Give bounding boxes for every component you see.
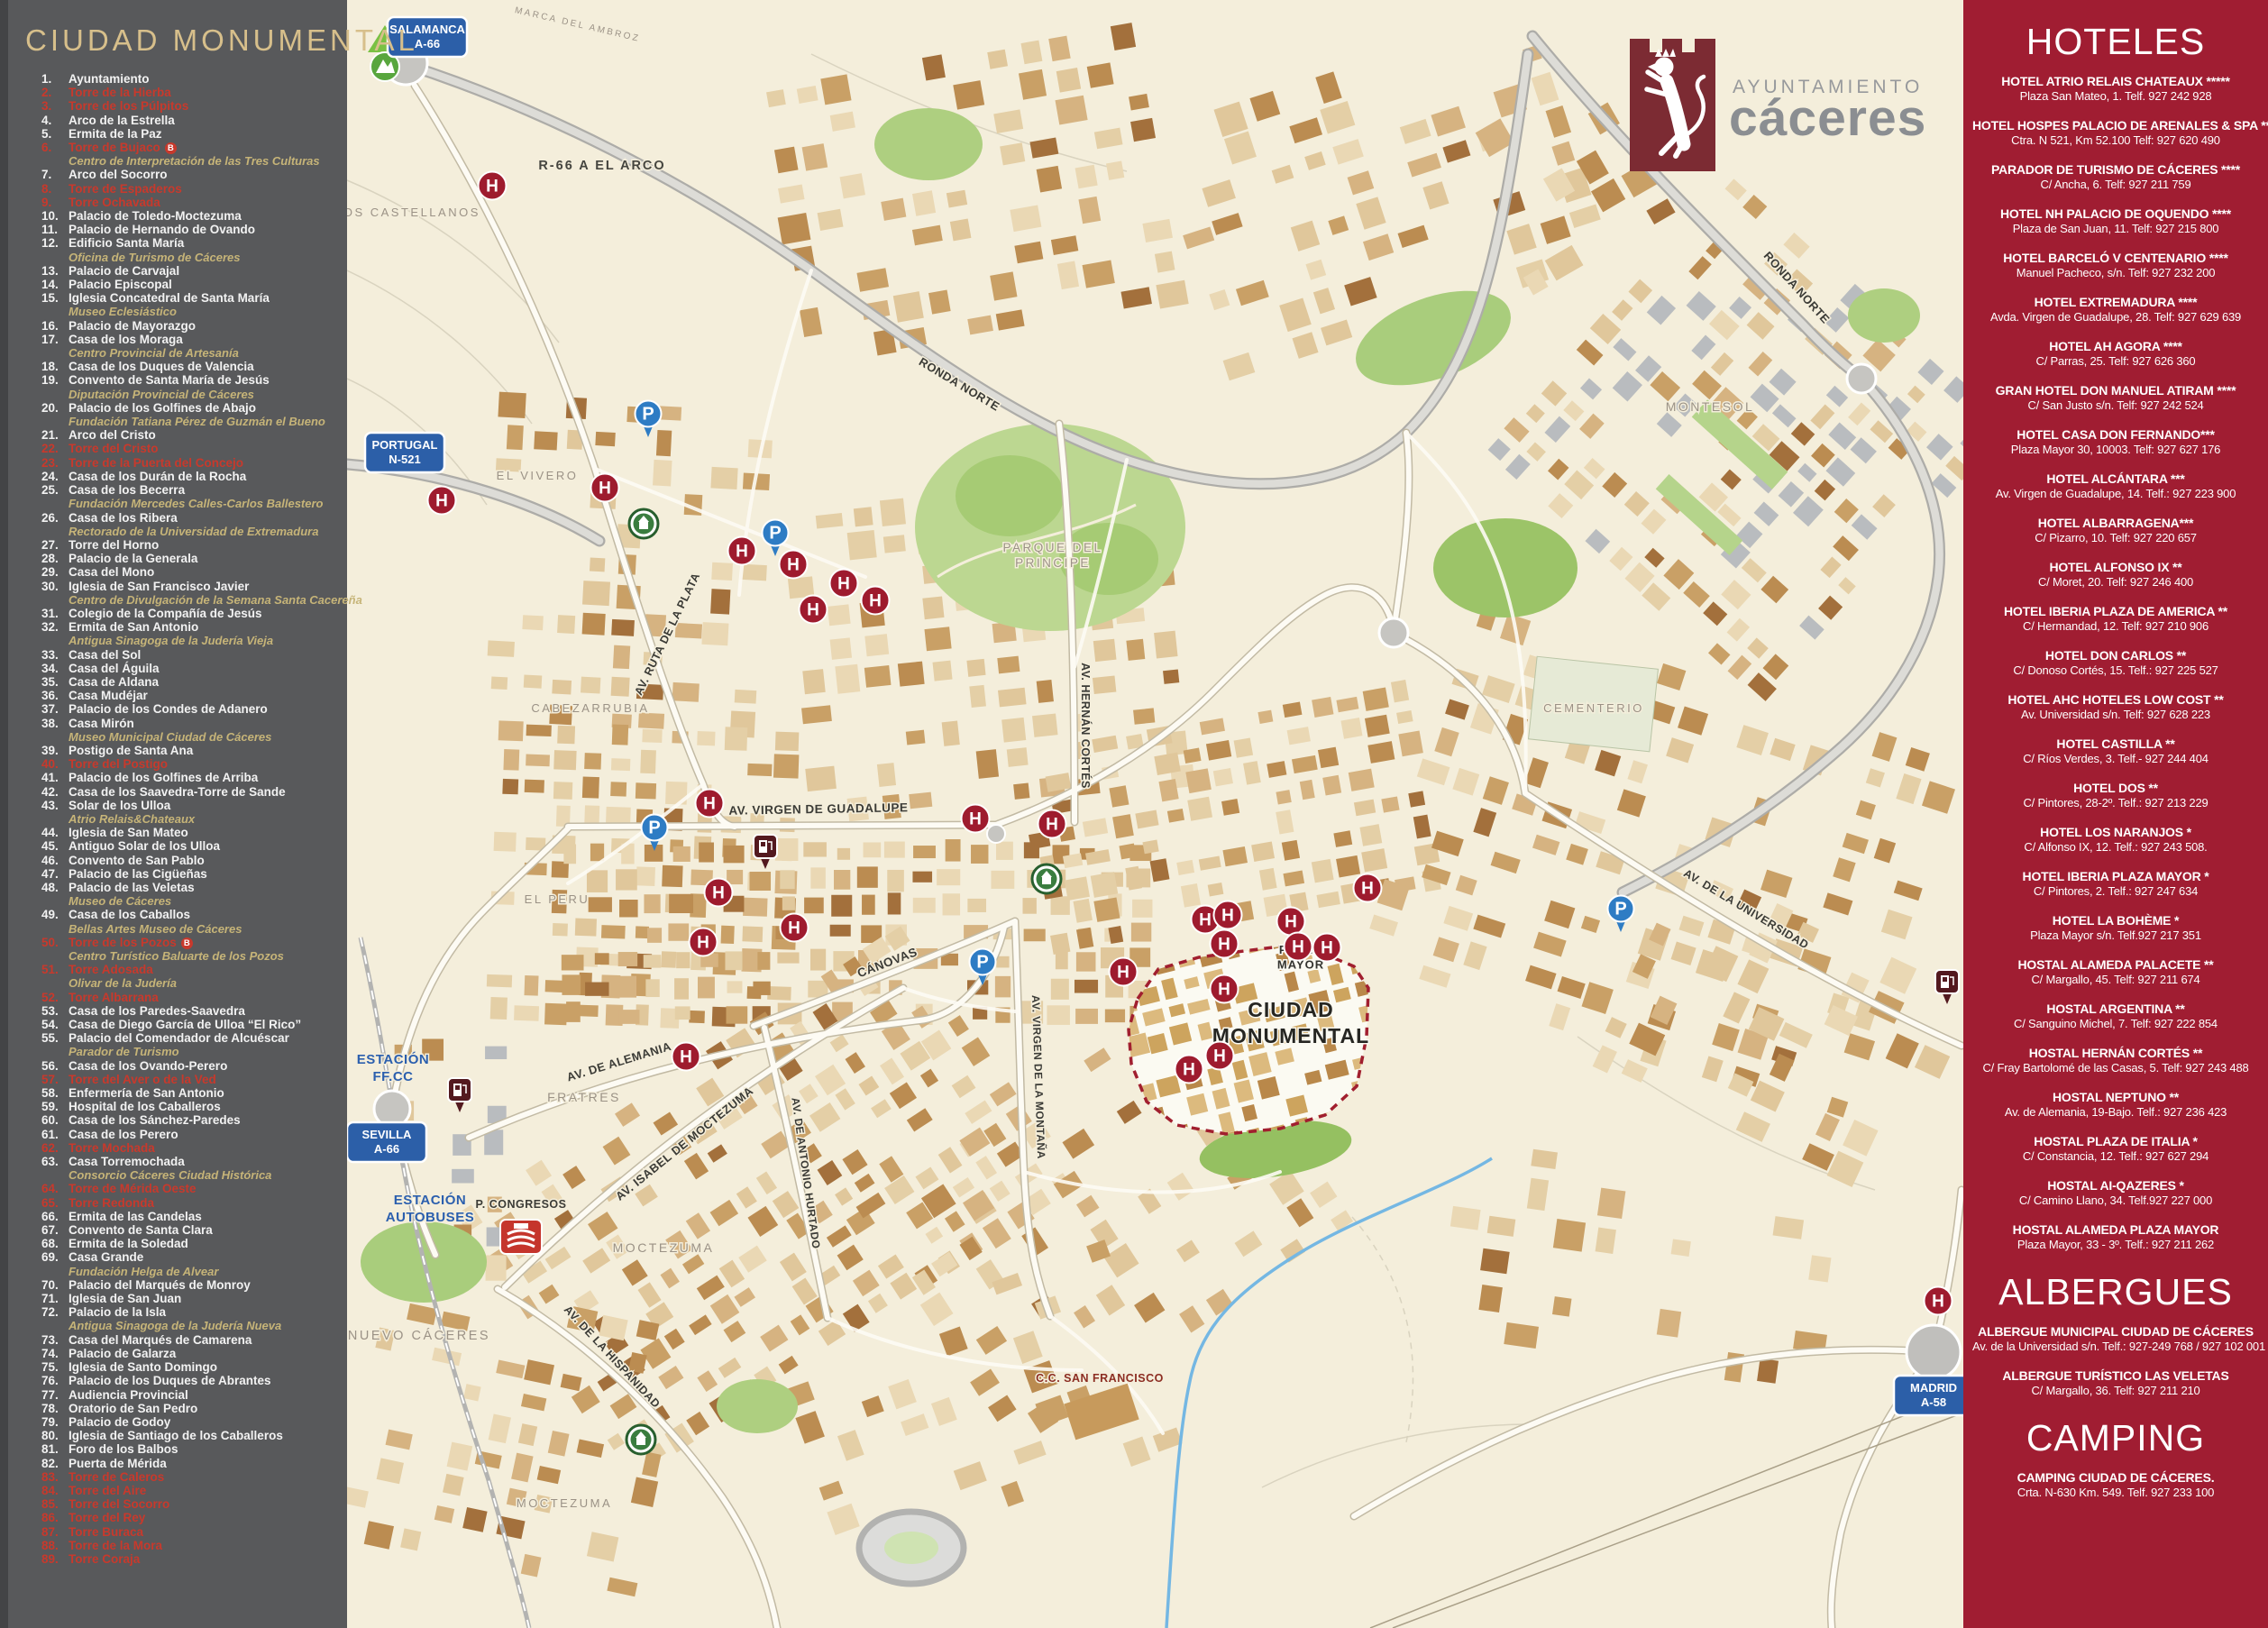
lodging-name: HOTEL IBERIA PLAZA MAYOR * <box>1972 869 2259 884</box>
lodging-address: C/ Margallo, 45. Telf: 927 211 674 <box>1972 973 2259 987</box>
lodging-entry: HOTEL IBERIA PLAZA DE AMERICA **C/ Herma… <box>1972 604 2259 634</box>
monument-number: 7. <box>41 168 69 181</box>
svg-text:H: H <box>837 575 850 594</box>
lodging-entry: HOTEL ALFONSO IX **C/ Moret, 20. Telf: 9… <box>1972 560 2259 590</box>
svg-text:H: H <box>1932 1293 1944 1312</box>
map-label: NUEVO CÁCERES <box>348 1328 490 1343</box>
monument-label: Palacio de los Golfines de Arriba <box>69 771 258 784</box>
lodging-entry: CAMPING CIUDAD DE CÁCERES.Crta. N-630 Km… <box>1972 1470 2259 1500</box>
map-label: MOCTEZUMA <box>517 1496 612 1510</box>
monument-label: Casa de los Becerra <box>69 483 185 497</box>
hotel-marker-icon: H <box>428 487 456 515</box>
monument-number: 37. <box>41 702 69 716</box>
lodging-name: HOTEL BARCELÓ V CENTENARIO **** <box>1972 251 2259 266</box>
svg-text:H: H <box>736 543 748 562</box>
lodging-name: ALBERGUE TURÍSTICO LAS VELETAS <box>1972 1368 2259 1384</box>
monument-label: Palacio de los Duques de Abrantes <box>69 1374 271 1387</box>
monument-number: 40. <box>41 757 69 771</box>
lodging-entry: HOTEL DON CARLOS **C/ Donoso Cortés, 15.… <box>1972 648 2259 678</box>
lodging-name: HOTEL CASTILLA ** <box>1972 736 2259 752</box>
monument-label: Palacio de las Veletas <box>69 881 195 894</box>
monument-label: Palacio de Carvajal <box>69 264 179 278</box>
hotel-marker-icon: H <box>1211 930 1239 958</box>
svg-text:A-66: A-66 <box>374 1142 399 1156</box>
lodging-name: HOTEL ALBARRAGENA*** <box>1972 516 2259 531</box>
lodging-entry: HOTEL DOS **C/ Pintores, 28-2º. Telf.: 9… <box>1972 781 2259 810</box>
monument-label: Torre de los PozosB <box>69 936 193 949</box>
lodging-address: C/ Ríos Verdes, 3. Telf.- 927 244 404 <box>1972 752 2259 766</box>
hotel-marker-icon: H <box>1285 933 1312 961</box>
lodging-address: C/ Margallo, 36. Telf: 927 211 210 <box>1972 1384 2259 1398</box>
monument-item: 35.Casa de Aldana <box>0 675 347 689</box>
monument-label: Enfermería de San Antonio <box>69 1086 224 1100</box>
monument-item: 39.Postigo de Santa Ana <box>0 744 347 757</box>
monument-label: Torre del Horno <box>69 538 159 552</box>
monument-item: 63.Casa Torremochada <box>0 1155 347 1168</box>
monument-number: 66. <box>41 1210 69 1223</box>
monument-label: Ayuntamiento <box>69 72 150 86</box>
monument-item: 48.Palacio de las Veletas <box>0 881 347 894</box>
monument-label: Casa Torremochada <box>69 1155 185 1168</box>
svg-text:H: H <box>599 480 611 498</box>
monument-number: 1. <box>41 72 69 86</box>
monument-label: Torre de BujacoB <box>69 141 177 154</box>
svg-text:H: H <box>680 1048 692 1067</box>
monument-item: 3.Torre de los Púlpitos <box>0 99 347 113</box>
monument-list: 1.Ayuntamiento2.Torre de la Hierba3.Torr… <box>0 72 347 1566</box>
monument-sublabel: Rectorado de la Universidad de Extremadu… <box>69 525 347 538</box>
hotel-marker-icon: H <box>1214 901 1242 929</box>
lodging-name: HOTEL ALFONSO IX ** <box>1972 560 2259 575</box>
monument-item: 73.Casa del Marqués de Camarena <box>0 1333 347 1347</box>
monument-item: 15.Iglesia Concatedral de Santa María <box>0 291 347 305</box>
monument-label: Torre de Mérida Oeste <box>69 1182 197 1195</box>
svg-text:H: H <box>1199 911 1212 930</box>
monument-item: 62.Torre Mochada <box>0 1141 347 1155</box>
monument-number: 42. <box>41 785 69 799</box>
monument-label: Audiencia Provincial <box>69 1388 188 1402</box>
monument-item: 4.Arco de la Estrella <box>0 114 347 127</box>
map-label: R-66 A EL ARCO <box>538 159 665 173</box>
monument-label: Palacio del Marqués de Monroy <box>69 1278 251 1292</box>
monument-number: 21. <box>41 428 69 442</box>
monument-label: Casa de los Ribera <box>69 511 178 525</box>
svg-text:MADRID: MADRID <box>1910 1381 1957 1395</box>
monument-label: Iglesia Concatedral de Santa María <box>69 291 270 305</box>
monument-number: 29. <box>41 565 69 579</box>
lodging-entry: HOTEL CASTILLA **C/ Ríos Verdes, 3. Telf… <box>1972 736 2259 766</box>
svg-text:H: H <box>1292 938 1304 957</box>
svg-text:H: H <box>787 556 800 575</box>
tourist-info-icon <box>1032 864 1061 893</box>
lodging-entry: HOTEL ATRIO RELAIS CHATEAUX *****Plaza S… <box>1972 74 2259 104</box>
monument-item: 16.Palacio de Mayorazgo <box>0 319 347 333</box>
svg-text:P: P <box>1614 900 1626 919</box>
hotel-marker-icon: H <box>1313 934 1341 962</box>
monument-item: 19.Convento de Santa María de Jesús <box>0 373 347 387</box>
lodging-entry: ALBERGUE MUNICIPAL CIUDAD DE CÁCERESAv. … <box>1972 1324 2259 1354</box>
svg-text:P: P <box>976 953 988 973</box>
monument-label: Casa de los Caballos <box>69 908 190 921</box>
lodging-address: C/ Parras, 25. Telf: 927 626 360 <box>1972 354 2259 369</box>
hotel-marker-icon: H <box>1277 908 1305 936</box>
monument-label: Palacio de la Generala <box>69 552 197 565</box>
monument-number: 83. <box>41 1470 69 1484</box>
map-label: EL PERU <box>525 892 590 906</box>
monument-label: Torre del Socorro <box>69 1497 169 1511</box>
svg-text:H: H <box>1117 964 1129 983</box>
lodging-address: Av. Universidad s/n. Telf: 927 628 223 <box>1972 708 2259 722</box>
monument-item: 23.Torre de la Puerta del Concejo <box>0 456 347 470</box>
monument-number: 53. <box>41 1004 69 1018</box>
lodging-name: HOTEL ALCÁNTARA *** <box>1972 471 2259 487</box>
monument-number: 6. <box>41 141 69 154</box>
monument-number: 45. <box>41 839 69 853</box>
svg-text:H: H <box>1361 880 1374 899</box>
monument-label: Casa de los Paredes-Saavedra <box>69 1004 245 1018</box>
monument-item: 58.Enfermería de San Antonio <box>0 1086 347 1100</box>
tourist-info-icon <box>626 1425 655 1454</box>
lodging-entry: HOTEL AHC HOTELES LOW COST **Av. Univers… <box>1972 692 2259 722</box>
monument-label: Ermita de las Candelas <box>69 1210 202 1223</box>
monument-label: Torre Coraja <box>69 1552 140 1566</box>
hotel-marker-icon: H <box>1206 1042 1234 1070</box>
monument-label: Casa del Mono <box>69 565 154 579</box>
monument-item: 74.Palacio de Galarza <box>0 1347 347 1360</box>
monument-number: 20. <box>41 401 69 415</box>
monument-label: Torre del Aver o de la Ved <box>69 1073 216 1086</box>
monument-label: Arco del Socorro <box>69 168 168 181</box>
lodging-name: HOTEL DOS ** <box>1972 781 2259 796</box>
monument-number: 19. <box>41 373 69 387</box>
monument-label: Casa de Diego García de Ulloa “El Rico” <box>69 1018 301 1031</box>
monument-item: 6.Torre de BujacoB <box>0 141 347 154</box>
lodging-entry: HOTEL LA BOHÈME *Plaza Mayor s/n. Telf.9… <box>1972 913 2259 943</box>
monument-number: 44. <box>41 826 69 839</box>
monument-number: 72. <box>41 1305 69 1319</box>
monument-item: 47.Palacio de las Cigüeñas <box>0 867 347 881</box>
monument-number: 46. <box>41 854 69 867</box>
monument-number: 79. <box>41 1415 69 1429</box>
monument-item: 70.Palacio del Marqués de Monroy <box>0 1278 347 1292</box>
b-badge-icon: B <box>165 142 177 154</box>
monument-sublabel: Parador de Turismo <box>69 1045 347 1058</box>
monument-number: 67. <box>41 1223 69 1237</box>
monument-number: 61. <box>41 1128 69 1141</box>
monument-item: 61.Casa de los Perero <box>0 1128 347 1141</box>
logo-caceres-text: cáceres <box>1729 89 1926 147</box>
lodging-entry: HOTEL AH AGORA ****C/ Parras, 25. Telf: … <box>1972 339 2259 369</box>
monument-number: 71. <box>41 1292 69 1305</box>
monument-item: 82.Puerta de Mérida <box>0 1457 347 1470</box>
monument-item: 10.Palacio de Toledo-Moctezuma <box>0 209 347 223</box>
monument-sublabel: Centro Turístico Baluarte de los Pozos <box>69 949 347 963</box>
city-map: LOS CASTELLANOSMARCA DEL AMBROZR-66 A EL… <box>347 0 1963 1628</box>
monument-number: 32. <box>41 620 69 634</box>
monument-item: 79.Palacio de Godoy <box>0 1415 347 1429</box>
lodging-address: Av. de la Universidad s/n. Telf.: 927-24… <box>1972 1340 2259 1354</box>
monument-label: Casa de los Sánchez-Paredes <box>69 1113 241 1127</box>
lodging-address: C/ Moret, 20. Telf: 927 246 400 <box>1972 575 2259 590</box>
monument-label: Palacio de los Condes de Adanero <box>69 702 268 716</box>
lodging-name: HOSTAL HERNÁN CORTÉS ** <box>1972 1046 2259 1061</box>
map-svg: LOS CASTELLANOSMARCA DEL AMBROZR-66 A EL… <box>347 0 1963 1628</box>
monument-number: 26. <box>41 511 69 525</box>
svg-text:PORTUGAL: PORTUGAL <box>372 438 438 452</box>
lodging-name: GRAN HOTEL DON MANUEL ATIRAM **** <box>1972 383 2259 398</box>
map-label: MONTESOL <box>1666 399 1755 414</box>
monument-label: Casa de los Saavedra-Torre de Sande <box>69 785 286 799</box>
monument-item: 37.Palacio de los Condes de Adanero <box>0 702 347 716</box>
road-sign-sevilla: SEVILLAA-66 <box>347 1122 426 1162</box>
monument-label: Palacio de Hernando de Ovando <box>69 223 255 236</box>
hotel-marker-icon: H <box>1038 810 1066 838</box>
lodging-entry: HOTEL BARCELÓ V CENTENARIO ****Manuel Pa… <box>1972 251 2259 280</box>
monument-number: 81. <box>41 1442 69 1456</box>
lodging-address: Av. de Alemania, 19-Bajo. Telf.: 927 236… <box>1972 1105 2259 1120</box>
monument-number: 76. <box>41 1374 69 1387</box>
monument-item: 46.Convento de San Pablo <box>0 854 347 867</box>
hotel-marker-icon: H <box>780 551 808 579</box>
hotel-marker-icon: H <box>1354 874 1382 902</box>
monument-label: Palacio del Comendador de Alcuéscar <box>69 1031 289 1045</box>
hotel-marker-icon: H <box>690 928 718 956</box>
monument-number: 63. <box>41 1155 69 1168</box>
monument-item: 21.Arco del Cristo <box>0 428 347 442</box>
svg-text:SEVILLA: SEVILLA <box>362 1128 413 1141</box>
monument-item: 83.Torre de Caleros <box>0 1470 347 1484</box>
hotel-marker-icon: H <box>479 172 507 200</box>
monument-number: 50. <box>41 936 69 949</box>
lodging-name: HOTEL IBERIA PLAZA DE AMERICA ** <box>1972 604 2259 619</box>
monument-number: 18. <box>41 360 69 373</box>
monument-item: 14.Palacio Episcopal <box>0 278 347 291</box>
map-label: AUTOBUSES <box>386 1210 474 1225</box>
monument-label: Oratorio de San Pedro <box>69 1402 197 1415</box>
lodging-name: HOSTAL PLAZA DE ITALIA * <box>1972 1134 2259 1149</box>
lodging-address: Plaza Mayor, 33 - 3º. Telf.: 927 211 262 <box>1972 1238 2259 1252</box>
lodging-address: Plaza Mayor s/n. Telf.927 217 351 <box>1972 928 2259 943</box>
svg-text:H: H <box>1046 816 1058 835</box>
lodging-entry: HOSTAL ARGENTINA **C/ Sanguino Michel, 7… <box>1972 1001 2259 1031</box>
monument-number: 27. <box>41 538 69 552</box>
monument-label: Arco del Cristo <box>69 428 156 442</box>
monument-number: 15. <box>41 291 69 305</box>
monument-label: Casa de los Durán de la Rocha <box>69 470 246 483</box>
hotel-marker-icon: H <box>862 587 890 615</box>
monument-sublabel: Fundación Tatiana Pérez de Guzmán el Bue… <box>69 415 347 428</box>
hotel-marker-icon: H <box>1925 1287 1952 1315</box>
monument-number: 12. <box>41 236 69 250</box>
hotel-marker-icon: H <box>781 914 809 942</box>
monument-item: 9.Torre Ochavada <box>0 196 347 209</box>
svg-text:H: H <box>712 884 725 903</box>
monument-label: Torre Albarrana <box>69 991 159 1004</box>
svg-text:H: H <box>703 795 716 814</box>
monument-number: 78. <box>41 1402 69 1415</box>
lodging-address: C/ Alfonso IX, 12. Telf.: 927 243 508. <box>1972 840 2259 855</box>
lodging-name: PARADOR DE TURISMO DE CÁCERES **** <box>1972 162 2259 178</box>
svg-text:H: H <box>1218 936 1230 955</box>
monument-item: 54.Casa de Diego García de Ulloa “El Ric… <box>0 1018 347 1031</box>
b-badge-icon: B <box>181 937 193 949</box>
monument-number: 23. <box>41 456 69 470</box>
monument-item: 1.Ayuntamiento <box>0 72 347 86</box>
monument-number: 74. <box>41 1347 69 1360</box>
monument-label: Casa de Aldana <box>69 675 159 689</box>
lodging-address: Ctra. N 521, Km 52.100 Telf: 927 620 490 <box>1972 133 2259 148</box>
lodging-entry: HOSTAL ALAMEDA PLAZA MAYORPlaza Mayor, 3… <box>1972 1222 2259 1252</box>
monument-label: Ermita de la Paz <box>69 127 162 141</box>
monument-number: 13. <box>41 264 69 278</box>
map-label: MOCTEZUMA <box>613 1240 715 1255</box>
map-label: PRINCIPE <box>1015 556 1091 570</box>
monument-item: 18.Casa de los Duques de Valencia <box>0 360 347 373</box>
monument-item: 29.Casa del Mono <box>0 565 347 579</box>
monument-sublabel: Fundación Mercedes Calles-Carlos Ballest… <box>69 497 347 510</box>
monument-label: Torre de la Hierba <box>69 86 171 99</box>
monument-sublabel: Bellas Artes Museo de Cáceres <box>69 922 347 936</box>
monument-number: 70. <box>41 1278 69 1292</box>
svg-text:H: H <box>1183 1061 1195 1080</box>
svg-text:A-66: A-66 <box>415 37 440 50</box>
monument-label: Palacio de la Isla <box>69 1305 166 1319</box>
monument-item: 44.Iglesia de San Mateo <box>0 826 347 839</box>
section-title-hoteles: HOTELES <box>1972 22 2259 61</box>
svg-text:P: P <box>642 405 654 425</box>
lodging-name: HOTEL DON CARLOS ** <box>1972 648 2259 663</box>
monument-item: 33.Casa del Sol <box>0 648 347 662</box>
svg-text:H: H <box>1221 907 1234 926</box>
monument-number: 31. <box>41 607 69 620</box>
monument-label: Palacio Episcopal <box>69 278 172 291</box>
lodging-address: C/ Fray Bartolomé de las Casas, 5. Telf:… <box>1972 1061 2259 1075</box>
monument-number: 88. <box>41 1539 69 1552</box>
svg-text:H: H <box>697 934 709 953</box>
map-label: CIUDAD <box>1248 998 1333 1021</box>
lodging-entry: HOSTAL NEPTUNO **Av. de Alemania, 19-Baj… <box>1972 1090 2259 1120</box>
monuments-panel-title: CIUDAD MONUMENTAL <box>0 23 347 58</box>
monument-item: 32.Ermita de San Antonio <box>0 620 347 634</box>
monument-sublabel: Antigua Sinagoga de la Judería Nueva <box>69 1319 347 1332</box>
monument-item: 68.Ermita de la Soledad <box>0 1237 347 1250</box>
lodging-address: C/ Pizarro, 10. Telf: 927 220 657 <box>1972 531 2259 545</box>
monument-item: 59.Hospital de los Caballeros <box>0 1100 347 1113</box>
map-label: FRATRES <box>547 1090 621 1104</box>
lodging-entry: HOTEL HOSPES PALACIO DE ARENALES & SPA *… <box>1972 118 2259 148</box>
monument-sublabel: Olivar de la Judería <box>69 976 347 990</box>
monument-number: 62. <box>41 1141 69 1155</box>
lodging-entry: HOTEL LOS NARANJOS *C/ Alfonso IX, 12. T… <box>1972 825 2259 855</box>
lodging-entry: HOSTAL PLAZA DE ITALIA *C/ Constancia, 1… <box>1972 1134 2259 1164</box>
monument-item: 84.Torre del Aire <box>0 1484 347 1497</box>
monument-item: 52.Torre Albarrana <box>0 991 347 1004</box>
monument-item: 27.Torre del Horno <box>0 538 347 552</box>
monument-label: Casa de los Duques de Valencia <box>69 360 254 373</box>
map-label: AV. HERNÁN CORTÉS <box>1079 663 1093 789</box>
monument-item: 77.Audiencia Provincial <box>0 1388 347 1402</box>
monument-label: Torre de Caleros <box>69 1470 164 1484</box>
monument-label: Torre de la Mora <box>69 1539 162 1552</box>
monument-number: 33. <box>41 648 69 662</box>
monument-item: 85.Torre del Socorro <box>0 1497 347 1511</box>
monument-item: 36.Casa Mudéjar <box>0 689 347 702</box>
map-label: C.C. SAN FRANCISCO <box>1036 1372 1164 1385</box>
lodging-entry: HOTEL ALBARRAGENA***C/ Pizarro, 10. Telf… <box>1972 516 2259 545</box>
monument-item: 55.Palacio del Comendador de Alcuéscar <box>0 1031 347 1045</box>
lodging-entry: HOTEL EXTREMADURA ****Avda. Virgen de Gu… <box>1972 295 2259 325</box>
hotel-marker-icon: H <box>672 1043 700 1071</box>
monument-number: 34. <box>41 662 69 675</box>
monument-label: Arco de la Estrella <box>69 114 175 127</box>
monument-number: 60. <box>41 1113 69 1127</box>
monument-item: 17.Casa de los Moraga <box>0 333 347 346</box>
monument-item: 28.Palacio de la Generala <box>0 552 347 565</box>
monument-item: 60.Casa de los Sánchez-Paredes <box>0 1113 347 1127</box>
hotel-marker-icon: H <box>830 570 858 598</box>
lodging-address: Plaza San Mateo, 1. Telf. 927 242 928 <box>1972 89 2259 104</box>
lodging-name: ALBERGUE MUNICIPAL CIUDAD DE CÁCERES <box>1972 1324 2259 1340</box>
lodging-name: HOTEL AH AGORA **** <box>1972 339 2259 354</box>
monument-number: 41. <box>41 771 69 784</box>
monument-label: Torre del Postigo <box>69 757 168 771</box>
monument-item: 56.Casa de los Ovando-Perero <box>0 1059 347 1073</box>
monument-sublabel: Antigua Sinagoga de la Judería Vieja <box>69 634 347 647</box>
road-sign-madrid: MADRIDA-58 <box>1894 1376 1963 1415</box>
monument-item: 22.Torre del Cristo <box>0 442 347 455</box>
monument-item: 7.Arco del Socorro <box>0 168 347 181</box>
monument-item: 78.Oratorio de San Pedro <box>0 1402 347 1415</box>
monument-item: 86.Torre del Rey <box>0 1511 347 1524</box>
monument-item: 24.Casa de los Durán de la Rocha <box>0 470 347 483</box>
caceres-tourist-map: LOS CASTELLANOSMARCA DEL AMBROZR-66 A EL… <box>0 0 2268 1628</box>
lodging-name: HOSTAL NEPTUNO ** <box>1972 1090 2259 1105</box>
lodging-name: HOTEL LOS NARANJOS * <box>1972 825 2259 840</box>
monument-label: Casa Mirón <box>69 717 134 730</box>
monument-number: 25. <box>41 483 69 497</box>
monument-label: Casa Mudéjar <box>69 689 148 702</box>
monument-label: Torre del Rey <box>69 1511 145 1524</box>
svg-text:H: H <box>869 592 882 611</box>
monument-label: Solar de los Ulloa <box>69 799 170 812</box>
monument-label: Palacio de Toledo-Moctezuma <box>69 209 242 223</box>
monument-label: Ermita de la Soledad <box>69 1237 188 1250</box>
monument-item: 80.Iglesia de Santiago de los Caballeros <box>0 1429 347 1442</box>
monument-label: Casa de los Ovando-Perero <box>69 1059 227 1073</box>
monument-number: 69. <box>41 1250 69 1264</box>
monument-item: 69.Casa Grande <box>0 1250 347 1264</box>
monument-number: 36. <box>41 689 69 702</box>
lodging-address: Plaza de San Juan, 11. Telf: 927 215 800 <box>1972 222 2259 236</box>
monument-label: Palacio de Galarza <box>69 1347 176 1360</box>
monument-number: 65. <box>41 1196 69 1210</box>
monument-sublabel: Diputación Provincial de Cáceres <box>69 388 347 401</box>
monument-label: Colegio de la Compañía de Jesús <box>69 607 262 620</box>
monument-number: 57. <box>41 1073 69 1086</box>
hotel-marker-icon: H <box>591 474 619 502</box>
monument-label: Casa del Águila <box>69 662 160 675</box>
svg-text:H: H <box>788 919 800 938</box>
monument-label: Iglesia de San Mateo <box>69 826 188 839</box>
hotel-marker-icon: H <box>1175 1056 1203 1084</box>
lodging-address: C/ Camino Llano, 34. Telf.927 227 000 <box>1972 1194 2259 1208</box>
monument-number: 24. <box>41 470 69 483</box>
monument-item: 53.Casa de los Paredes-Saavedra <box>0 1004 347 1018</box>
monument-number: 47. <box>41 867 69 881</box>
monument-number: 84. <box>41 1484 69 1497</box>
monument-label: Iglesia de San Francisco Javier <box>69 580 249 593</box>
lodging-address: C/ Hermandad, 12. Telf: 927 210 906 <box>1972 619 2259 634</box>
